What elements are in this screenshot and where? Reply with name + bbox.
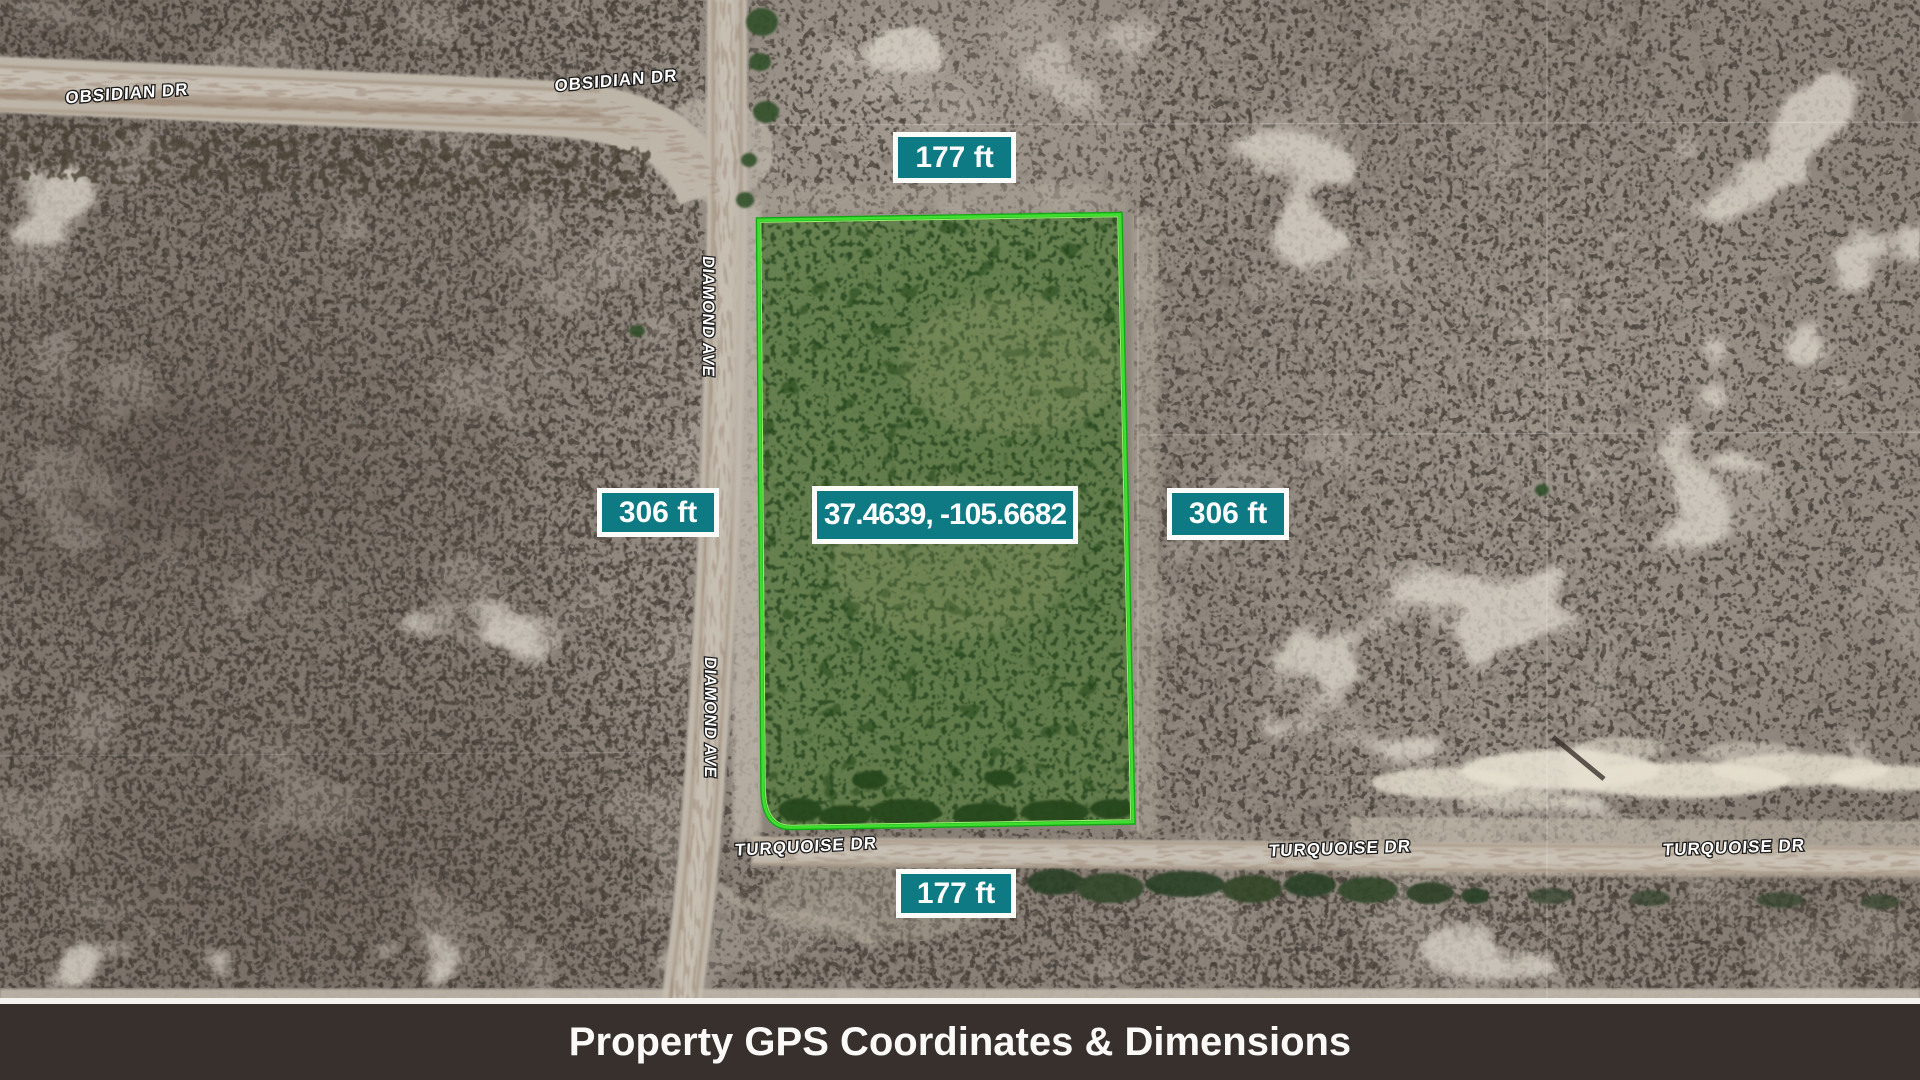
svg-text:DIAMOND AVE: DIAMOND AVE bbox=[701, 656, 720, 779]
svg-text:DIAMOND AVE: DIAMOND AVE bbox=[699, 255, 718, 378]
